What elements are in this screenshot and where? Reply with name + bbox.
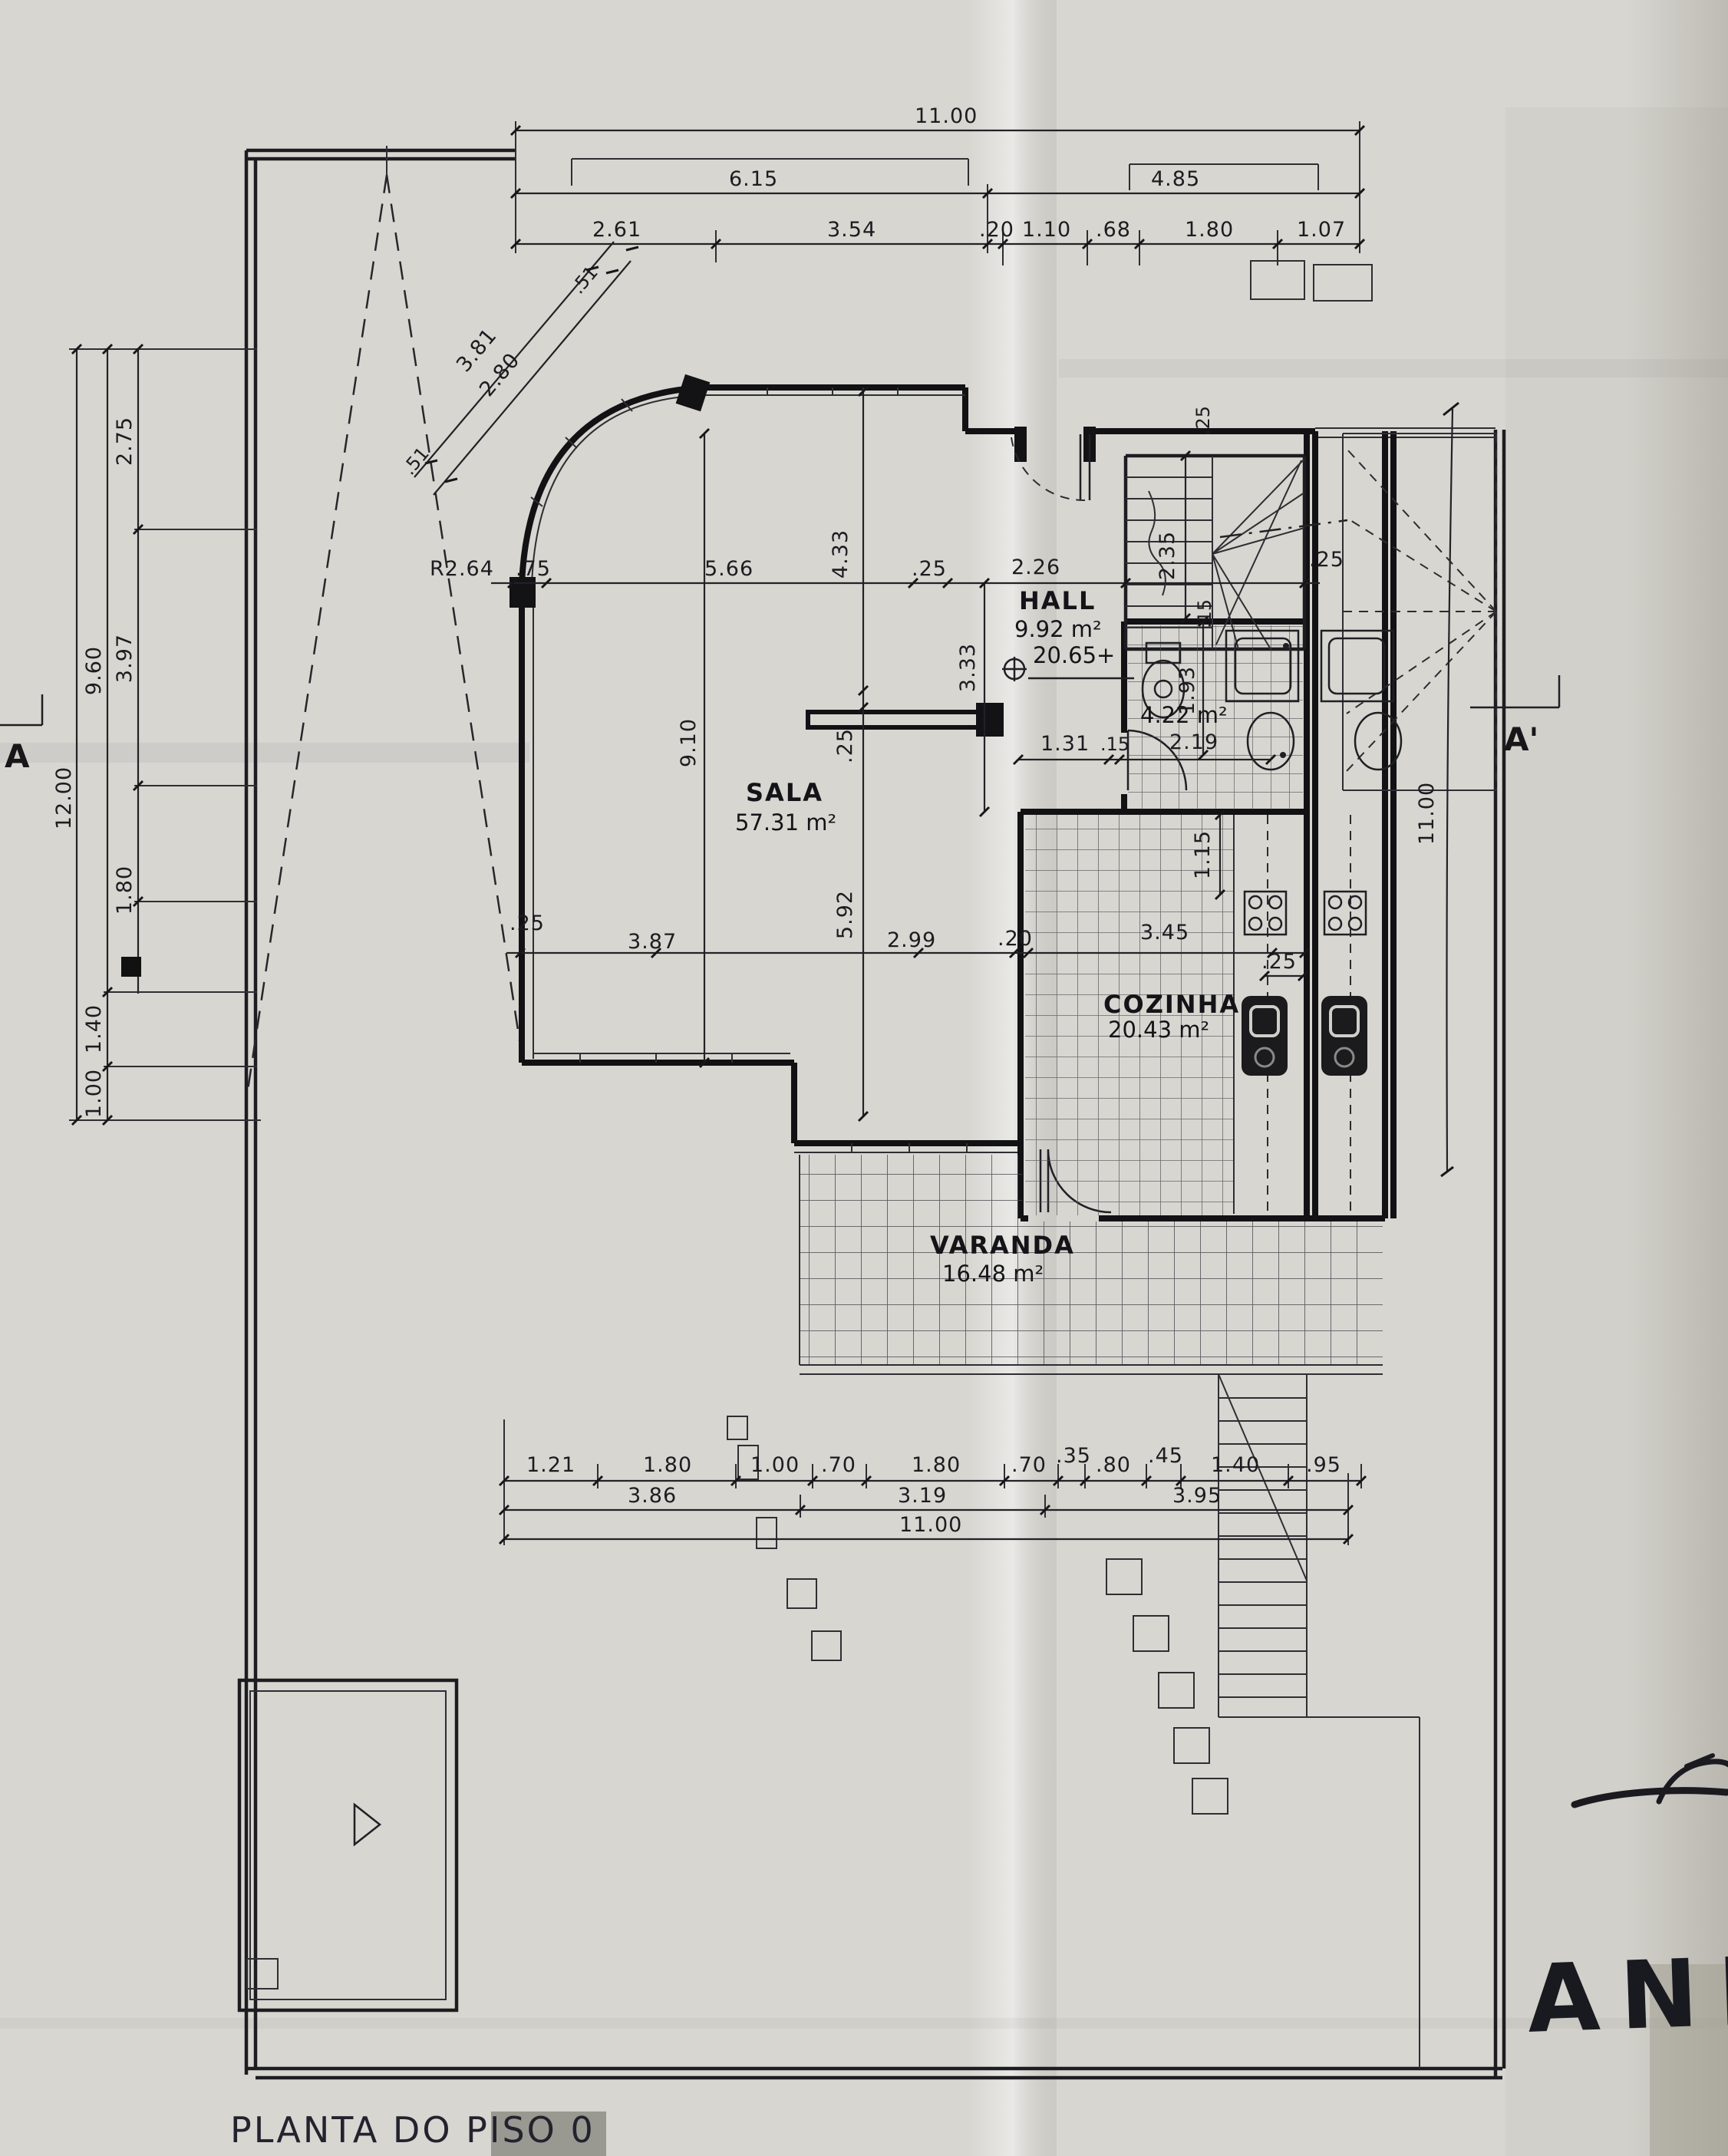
room-cozinha-area: 20.43 m² [1108,1017,1209,1043]
dim-label: 5.92 [833,890,857,939]
dim-label: 9.60 [82,646,106,695]
dim-label: 11.00 [899,1513,962,1537]
dim-label: 1.21 [526,1453,575,1477]
dim-label: 3.87 [628,930,677,954]
dim-label: 6.15 [729,167,778,191]
dim-label: .15 [1100,734,1129,755]
room-varanda: VARANDA [930,1231,1075,1260]
dim-label: 5.66 [704,557,754,581]
dim-label: 3.54 [827,218,876,242]
room-sala-area: 57.31 m² [735,809,836,836]
dim-label: 12.00 [52,766,76,829]
dim-label: 4.85 [1151,167,1200,191]
dim-label: .70 [1011,1453,1047,1477]
dim-label: .25 [509,912,545,935]
annex-outline [239,1680,457,2010]
dim-label: 9.10 [677,718,701,767]
dim-label: 1.40 [1211,1453,1260,1477]
section-a: A [5,737,30,775]
dim-label: .25 [912,557,947,581]
dimension-chain-left: 12.00 9.60 1.40 1.00 2.75 3.97 1.80 [52,344,261,1125]
plan-title: PLANTA DO PISO 0 [230,2109,595,2151]
dim-label: .15 [1194,599,1215,628]
room-cozinha: COZINHA [1103,990,1240,1019]
dim-label: 1.93 [1176,666,1199,715]
dim-label: 11.00 [915,104,978,128]
room-hall-area: 9.92 m² [1014,616,1102,642]
dimension-chain-top: 11.00 6.15 4.85 2.61 3.54 .20 1.10 .68 1… [511,104,1364,265]
dim-label: .35 [1056,1444,1091,1468]
dim-label: .25 [833,728,857,763]
dimension-chain-bottom: 1.21 1.80 1.00 .70 1.80 .70 .35 .80 .45 … [500,1419,1366,1545]
dim-label: 1.80 [113,865,137,915]
dim-label: .45 [1148,1444,1183,1468]
room-hall: HALL [1019,586,1096,615]
dim-label: 1.07 [1297,218,1346,242]
dim-label: 3.33 [956,643,980,692]
dim-label: 3.19 [898,1484,947,1508]
dim-label: 1.80 [643,1453,692,1477]
dim-label: 2.61 [592,218,641,242]
dim-label: 2.75 [113,417,137,466]
dim-label: 1.40 [82,1004,106,1053]
dim-label: .20 [979,218,1014,242]
dim-label: 1.00 [82,1069,106,1118]
level-value: 20.65+ [1033,642,1115,668]
dim-label: .70 [821,1453,856,1477]
room-sala: SALA [746,778,823,807]
dimension-chain-diagonal: 3.81 2.80 .51 .51 [398,242,638,495]
floor-plan-drawing: 20.65+ HALL 9.92 m² SALA 57.31 m² COZINH… [0,0,1728,2156]
dim-label: 3.95 [1172,1484,1222,1508]
dim-label: 2.99 [887,928,936,952]
dim-label: 1.31 [1040,732,1090,756]
dim-label: 3.86 [628,1484,677,1508]
dim-label: 1.15 [1191,830,1215,879]
dim-label: 2.19 [1169,730,1219,754]
dim-label: 2.26 [1011,555,1060,579]
dim-label: R2.64 [430,557,494,581]
dim-label: 1.80 [912,1453,961,1477]
dim-label: 2.35 [1156,531,1179,580]
tiled-floors [800,625,1383,1374]
annex-note: ANEXO [1525,1929,1728,2054]
dim-label: 3.45 [1140,921,1189,944]
exterior-stair-fan [1343,434,1496,790]
dim-label: 1.00 [750,1453,800,1477]
dim-label: 1.10 [1022,218,1071,242]
dim-label: .75 [516,557,551,581]
garden-steps [727,1374,1420,2069]
room-varanda-area: 16.48 m² [942,1261,1044,1287]
dim-label: .20 [998,927,1033,951]
kitchen-counters [1234,815,1367,1214]
dim-label: .80 [1096,1453,1131,1477]
dim-label: 11.00 [1415,782,1439,845]
dim-label: .68 [1096,218,1131,242]
dim-label: 3.97 [113,634,137,683]
dim-label: .95 [1306,1453,1341,1477]
scanned-floor-plan-photo: 20.65+ HALL 9.92 m² SALA 57.31 m² COZINH… [0,0,1728,2156]
dim-label: 4.33 [829,529,852,579]
dim-label: .25 [1192,406,1214,435]
dim-label: 1.80 [1185,218,1234,242]
dim-label: .25 [1309,548,1344,572]
section-a-prime: A' [1504,720,1538,758]
roof-projection-dashed [248,175,520,1090]
